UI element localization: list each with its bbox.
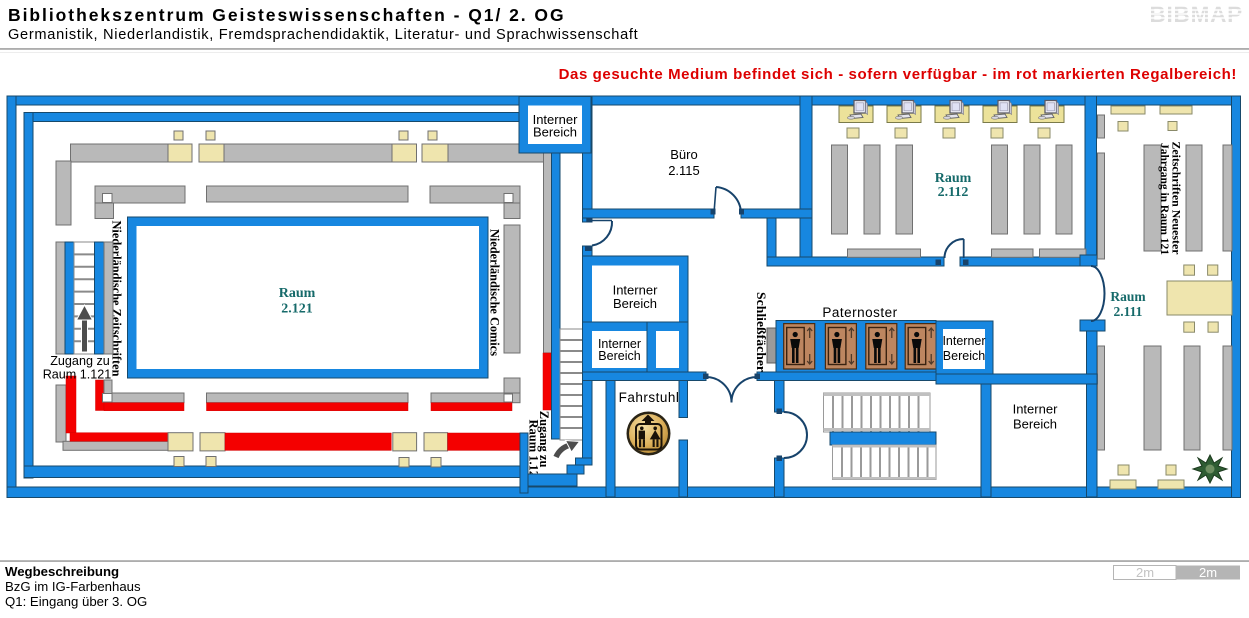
svg-text:2.115: 2.115: [668, 163, 700, 178]
svg-text:Jahrgang in Raum 121: Jahrgang in Raum 121: [1158, 143, 1172, 255]
svg-text:2.111: 2.111: [1114, 304, 1143, 319]
svg-text:Paternoster: Paternoster: [822, 305, 897, 320]
svg-text:Raum: Raum: [279, 286, 316, 301]
svg-text:Q1: Eingang über 3. OG: Q1: Eingang über 3. OG: [5, 594, 147, 609]
svg-text:Niederländische Comics: Niederländische Comics: [488, 229, 502, 356]
svg-text:Germanistik, Niederlandistik,: Germanistik, Niederlandistik, Fremdsprac…: [8, 27, 638, 43]
svg-text:Fahrstuhl: Fahrstuhl: [619, 390, 680, 405]
svg-text:Raum: Raum: [1110, 289, 1146, 304]
svg-text:Bereich: Bereich: [1013, 417, 1057, 432]
svg-text:Bereich: Bereich: [598, 349, 640, 363]
svg-text:BzG im IG-Farbenhaus: BzG im IG-Farbenhaus: [5, 579, 141, 594]
svg-text:Büro: Büro: [670, 147, 697, 162]
svg-text:Raum: Raum: [935, 171, 972, 186]
svg-text:Wegbeschreibung: Wegbeschreibung: [5, 564, 119, 579]
svg-text:Interner: Interner: [942, 334, 985, 348]
svg-text:2m: 2m: [1136, 565, 1154, 580]
svg-text:Raum 1.121: Raum 1.121: [43, 368, 112, 382]
svg-text:Das gesuchte Medium befindet s: Das gesuchte Medium befindet sich - sofe…: [559, 66, 1237, 83]
svg-text:Bibliothekszentrum Geisteswiss: Bibliothekszentrum Geisteswissenschaften…: [8, 5, 566, 25]
svg-text:Zugang zu: Zugang zu: [50, 354, 110, 368]
svg-text:Bereich: Bereich: [533, 125, 577, 140]
svg-text:Bereich: Bereich: [613, 296, 657, 311]
svg-text:2m: 2m: [1199, 565, 1217, 580]
svg-text:Interner: Interner: [1013, 402, 1058, 417]
svg-text:2.112: 2.112: [938, 185, 969, 200]
svg-text:2.121: 2.121: [281, 302, 313, 317]
svg-text:Bereich: Bereich: [943, 349, 985, 363]
